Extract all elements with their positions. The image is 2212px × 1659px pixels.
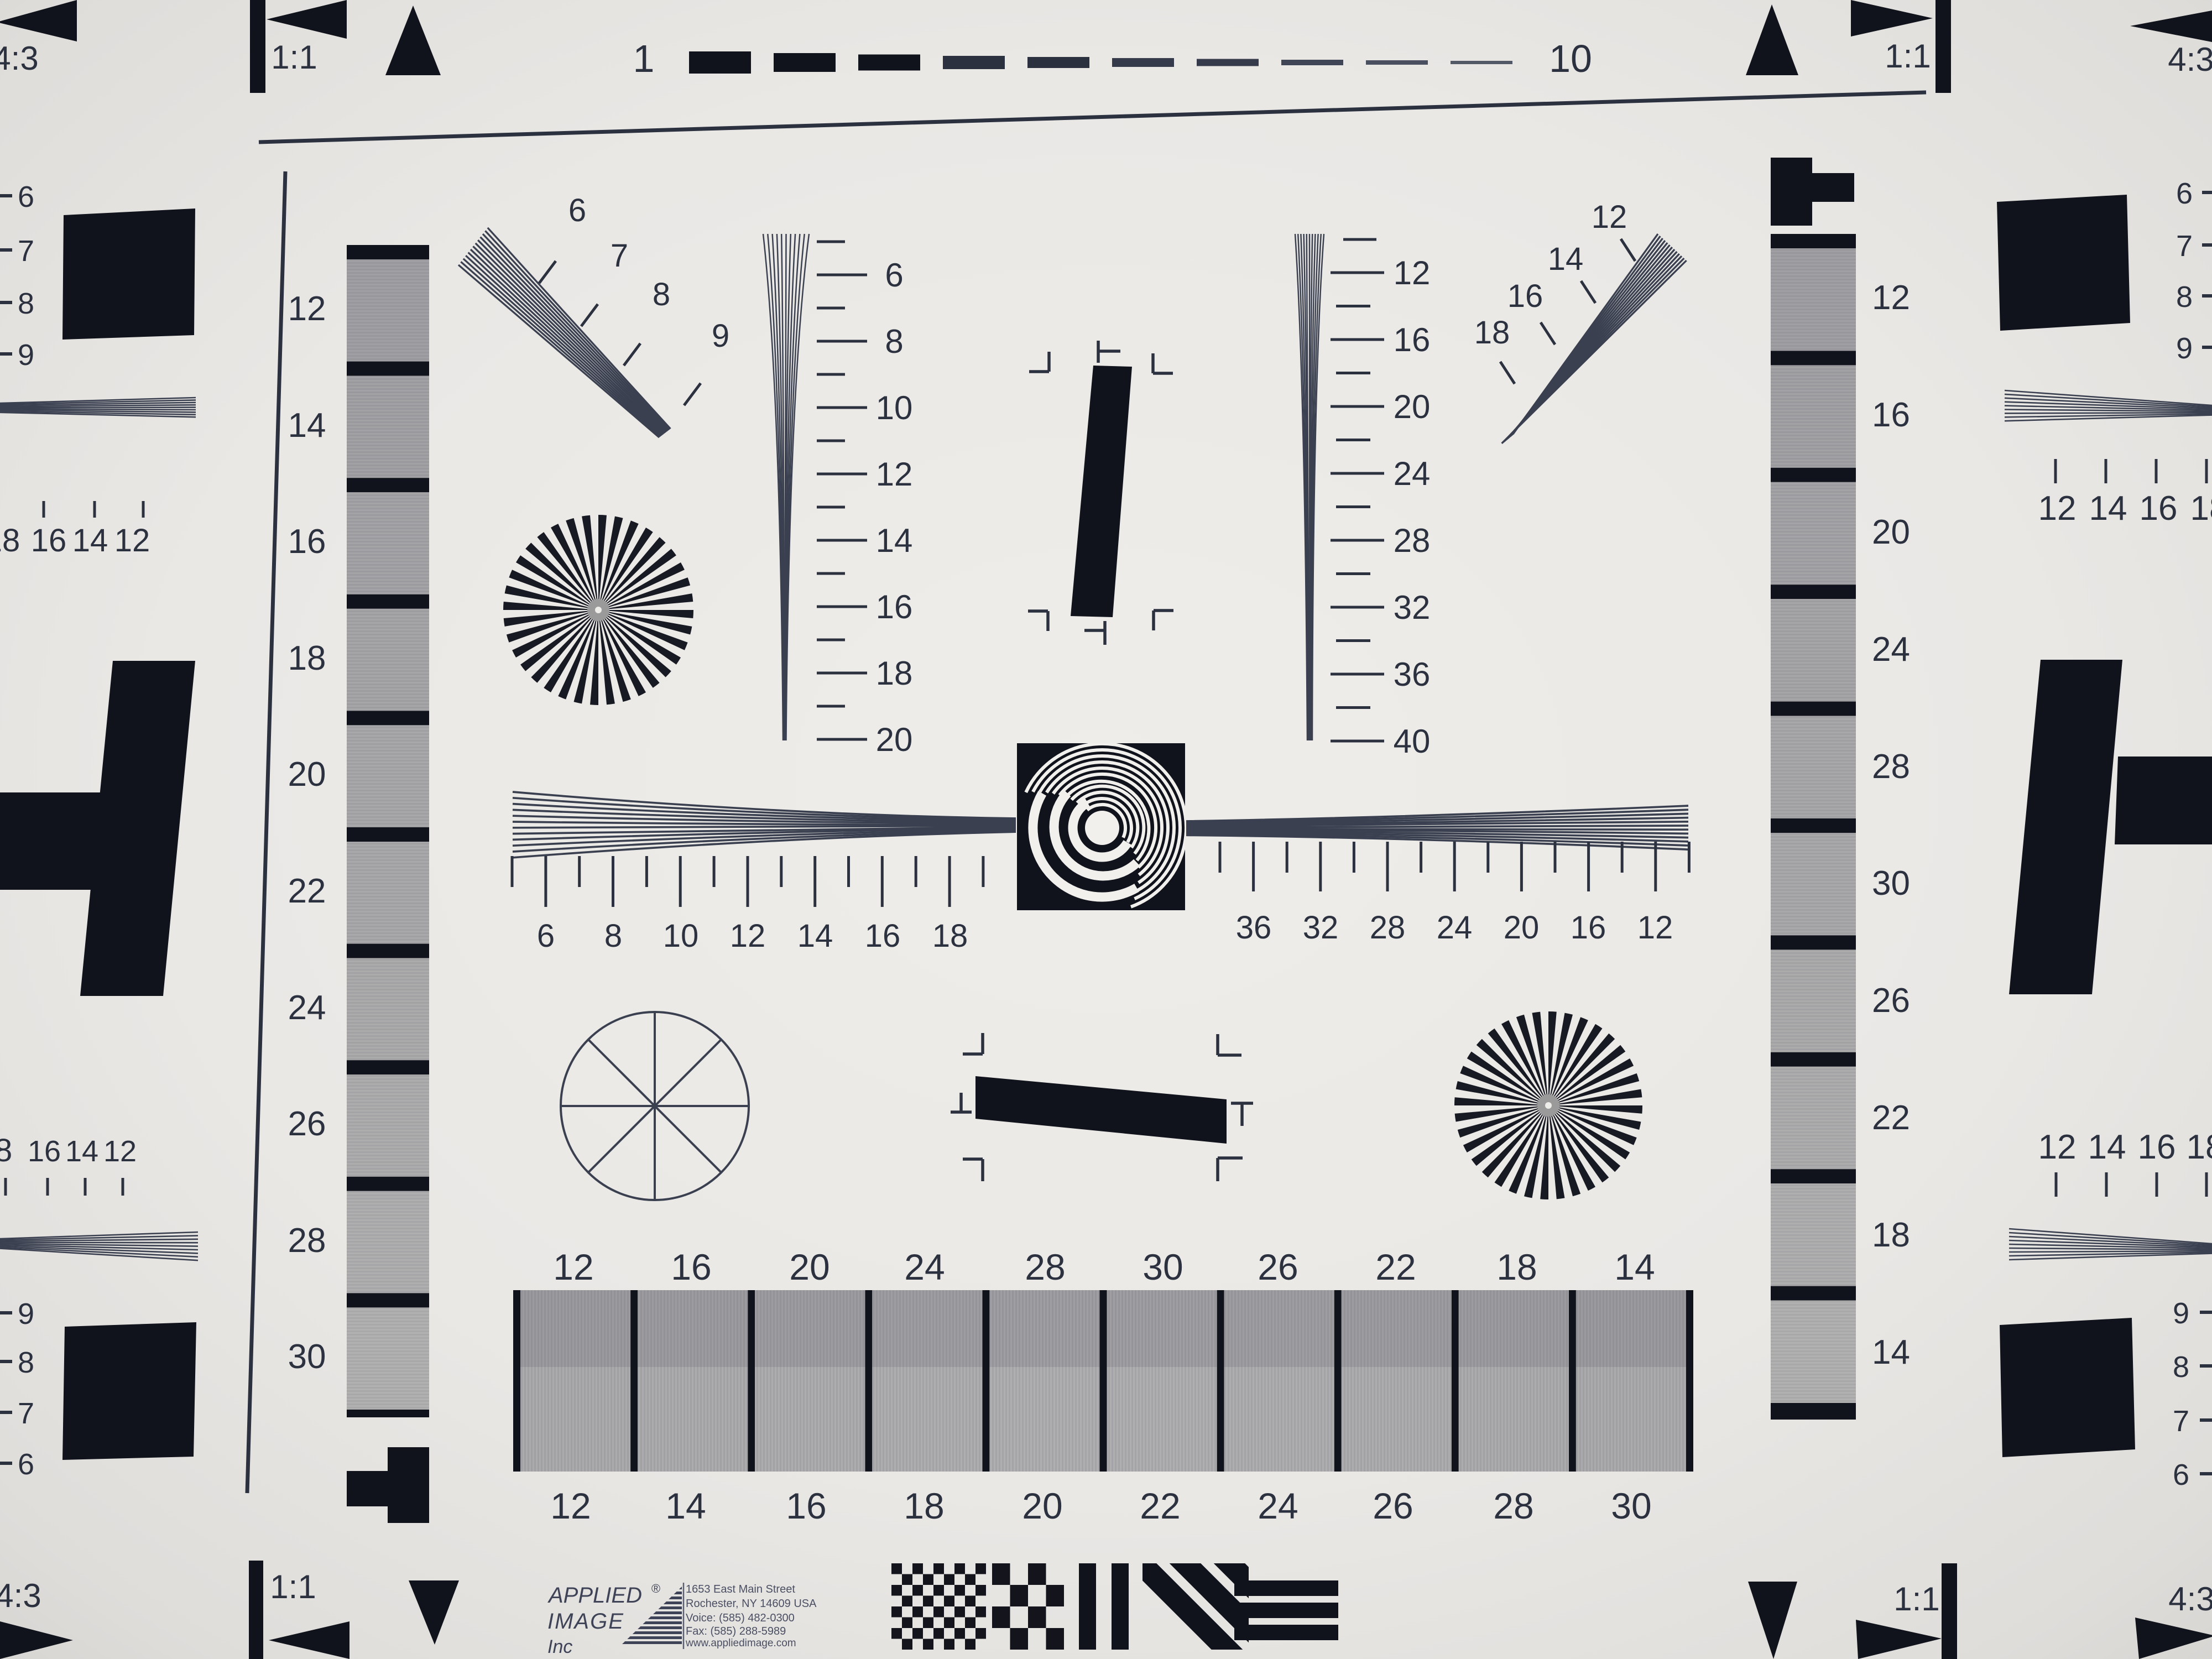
svg-text:30: 30 — [288, 1338, 326, 1376]
svg-text:www.appliedimage.com: www.appliedimage.com — [685, 1637, 796, 1649]
svg-text:8: 8 — [18, 1346, 34, 1379]
svg-text:26: 26 — [1872, 982, 1910, 1020]
svg-text:®: ® — [651, 1582, 660, 1595]
svg-text:7: 7 — [18, 234, 34, 268]
svg-text:4:3: 4:3 — [0, 1577, 41, 1614]
svg-text:6: 6 — [18, 1448, 34, 1481]
svg-text:4:3: 4:3 — [2168, 1580, 2212, 1618]
svg-text:18: 18 — [2187, 1128, 2212, 1166]
svg-text:6: 6 — [2173, 1458, 2189, 1491]
svg-text:18: 18 — [932, 918, 968, 954]
svg-text:12: 12 — [103, 1135, 137, 1168]
svg-text:Inc: Inc — [547, 1636, 572, 1657]
svg-text:20: 20 — [288, 755, 326, 794]
svg-text:22: 22 — [1872, 1099, 1910, 1137]
svg-text:Voice: (585) 482-0300: Voice: (585) 482-0300 — [686, 1612, 795, 1624]
svg-text:9: 9 — [2173, 1297, 2189, 1330]
svg-text:12: 12 — [1394, 254, 1431, 291]
svg-text:8: 8 — [2173, 1350, 2189, 1384]
svg-text:26: 26 — [1258, 1246, 1298, 1287]
svg-text:1:1: 1:1 — [270, 1568, 316, 1605]
svg-text:20: 20 — [1872, 513, 1910, 551]
svg-text:1: 1 — [633, 37, 655, 80]
svg-text:1:1: 1:1 — [1885, 38, 1931, 75]
svg-text:14: 14 — [288, 406, 326, 445]
svg-text:12: 12 — [288, 290, 326, 328]
svg-text:26: 26 — [1373, 1485, 1413, 1526]
svg-text:12: 12 — [1592, 199, 1627, 235]
svg-text:22: 22 — [1375, 1246, 1416, 1287]
svg-text:12: 12 — [1637, 910, 1673, 946]
svg-text:7: 7 — [2176, 229, 2193, 263]
svg-text:28: 28 — [1025, 1246, 1065, 1287]
svg-text:12: 12 — [2038, 489, 2077, 528]
svg-text:18: 18 — [1872, 1216, 1910, 1254]
svg-text:10: 10 — [1549, 37, 1592, 80]
svg-text:8: 8 — [2176, 280, 2193, 314]
svg-text:16: 16 — [865, 918, 901, 954]
svg-text:28: 28 — [1394, 522, 1431, 559]
svg-text:14: 14 — [797, 918, 833, 954]
svg-text:40: 40 — [1394, 723, 1431, 760]
svg-text:14: 14 — [876, 522, 913, 559]
svg-text:20: 20 — [1394, 388, 1431, 425]
svg-text:24: 24 — [288, 989, 326, 1027]
svg-text:IMAGE: IMAGE — [547, 1609, 624, 1634]
svg-text:20: 20 — [876, 721, 913, 758]
svg-text:24: 24 — [1394, 455, 1431, 492]
svg-text:10: 10 — [663, 918, 699, 954]
svg-text:16: 16 — [786, 1485, 826, 1526]
svg-text:20: 20 — [1504, 910, 1540, 946]
svg-text:6: 6 — [537, 918, 555, 954]
svg-text:16: 16 — [2140, 489, 2178, 528]
svg-text:8: 8 — [18, 287, 34, 320]
svg-text:20: 20 — [1022, 1485, 1062, 1526]
svg-text:1:1: 1:1 — [271, 39, 317, 76]
svg-text:16: 16 — [1394, 321, 1431, 358]
svg-text:9: 9 — [18, 1297, 34, 1331]
svg-text:28: 28 — [1370, 910, 1406, 946]
svg-text:18: 18 — [1474, 315, 1510, 351]
svg-text:24: 24 — [1437, 910, 1473, 946]
svg-text:16: 16 — [288, 523, 326, 561]
svg-text:14: 14 — [665, 1485, 706, 1526]
svg-text:30: 30 — [1142, 1246, 1183, 1287]
svg-text:18: 18 — [0, 1133, 12, 1168]
svg-text:12: 12 — [550, 1485, 591, 1526]
svg-text:32: 32 — [1303, 910, 1339, 946]
svg-text:9: 9 — [2176, 332, 2193, 365]
svg-text:7: 7 — [2173, 1405, 2189, 1438]
svg-text:16: 16 — [31, 523, 67, 559]
svg-text:1653 East Main Street: 1653 East Main Street — [686, 1583, 795, 1595]
svg-text:7: 7 — [18, 1397, 34, 1430]
svg-text:28: 28 — [288, 1222, 326, 1260]
svg-text:30: 30 — [1611, 1485, 1651, 1526]
svg-text:14: 14 — [2088, 1128, 2126, 1166]
svg-text:18: 18 — [0, 523, 20, 559]
svg-text:7: 7 — [611, 238, 628, 274]
svg-text:24: 24 — [1872, 630, 1910, 669]
svg-text:36: 36 — [1394, 656, 1431, 693]
svg-text:12: 12 — [730, 918, 766, 954]
svg-text:APPLIED: APPLIED — [547, 1583, 642, 1608]
svg-text:26: 26 — [288, 1105, 326, 1143]
svg-text:18: 18 — [1496, 1246, 1537, 1287]
svg-text:30: 30 — [1872, 864, 1910, 902]
svg-text:12: 12 — [553, 1246, 593, 1287]
svg-text:28: 28 — [1872, 748, 1910, 786]
svg-text:14: 14 — [72, 523, 108, 559]
svg-text:12: 12 — [876, 456, 913, 493]
svg-text:16: 16 — [1571, 910, 1606, 946]
svg-text:14: 14 — [65, 1135, 98, 1168]
svg-text:8: 8 — [653, 276, 670, 312]
svg-text:9: 9 — [712, 318, 729, 354]
svg-text:16: 16 — [1872, 396, 1910, 434]
svg-text:10: 10 — [876, 389, 913, 426]
svg-text:16: 16 — [671, 1246, 711, 1287]
svg-text:1:1: 1:1 — [1893, 1580, 1939, 1618]
svg-text:18: 18 — [876, 655, 913, 692]
svg-text:12: 12 — [114, 523, 150, 559]
svg-text:16: 16 — [1507, 278, 1543, 314]
svg-text:16: 16 — [2138, 1128, 2176, 1166]
svg-text:24: 24 — [1258, 1485, 1298, 1526]
svg-text:Rochester, NY 14609 USA: Rochester, NY 14609 USA — [686, 1598, 817, 1610]
svg-text:14: 14 — [1614, 1246, 1655, 1287]
svg-text:8: 8 — [885, 323, 903, 360]
svg-text:12: 12 — [1872, 279, 1910, 317]
svg-text:16: 16 — [28, 1135, 61, 1168]
svg-text:18: 18 — [288, 639, 326, 677]
svg-text:16: 16 — [876, 588, 913, 625]
svg-text:14: 14 — [1872, 1333, 1910, 1371]
svg-text:18: 18 — [904, 1485, 944, 1526]
svg-text:14: 14 — [2089, 489, 2127, 528]
svg-text:6: 6 — [885, 257, 903, 294]
svg-text:14: 14 — [1548, 241, 1584, 277]
svg-text:6: 6 — [2176, 177, 2193, 210]
svg-text:36: 36 — [1236, 910, 1272, 946]
svg-text:20: 20 — [789, 1246, 830, 1287]
svg-text:24: 24 — [904, 1246, 945, 1287]
svg-text:6: 6 — [18, 180, 34, 213]
svg-text:22: 22 — [288, 872, 326, 910]
svg-text:18: 18 — [2190, 489, 2212, 528]
svg-text:32: 32 — [1394, 589, 1431, 626]
svg-text:8: 8 — [604, 918, 622, 954]
svg-text:4:3: 4:3 — [0, 40, 39, 77]
svg-text:6: 6 — [568, 192, 586, 228]
svg-text:12: 12 — [2038, 1128, 2077, 1166]
svg-text:Fax: (585) 288-5989: Fax: (585) 288-5989 — [686, 1625, 786, 1637]
svg-text:9: 9 — [18, 338, 34, 372]
svg-text:22: 22 — [1140, 1485, 1180, 1526]
svg-text:28: 28 — [1493, 1485, 1533, 1526]
svg-text:4:3: 4:3 — [2168, 41, 2212, 78]
